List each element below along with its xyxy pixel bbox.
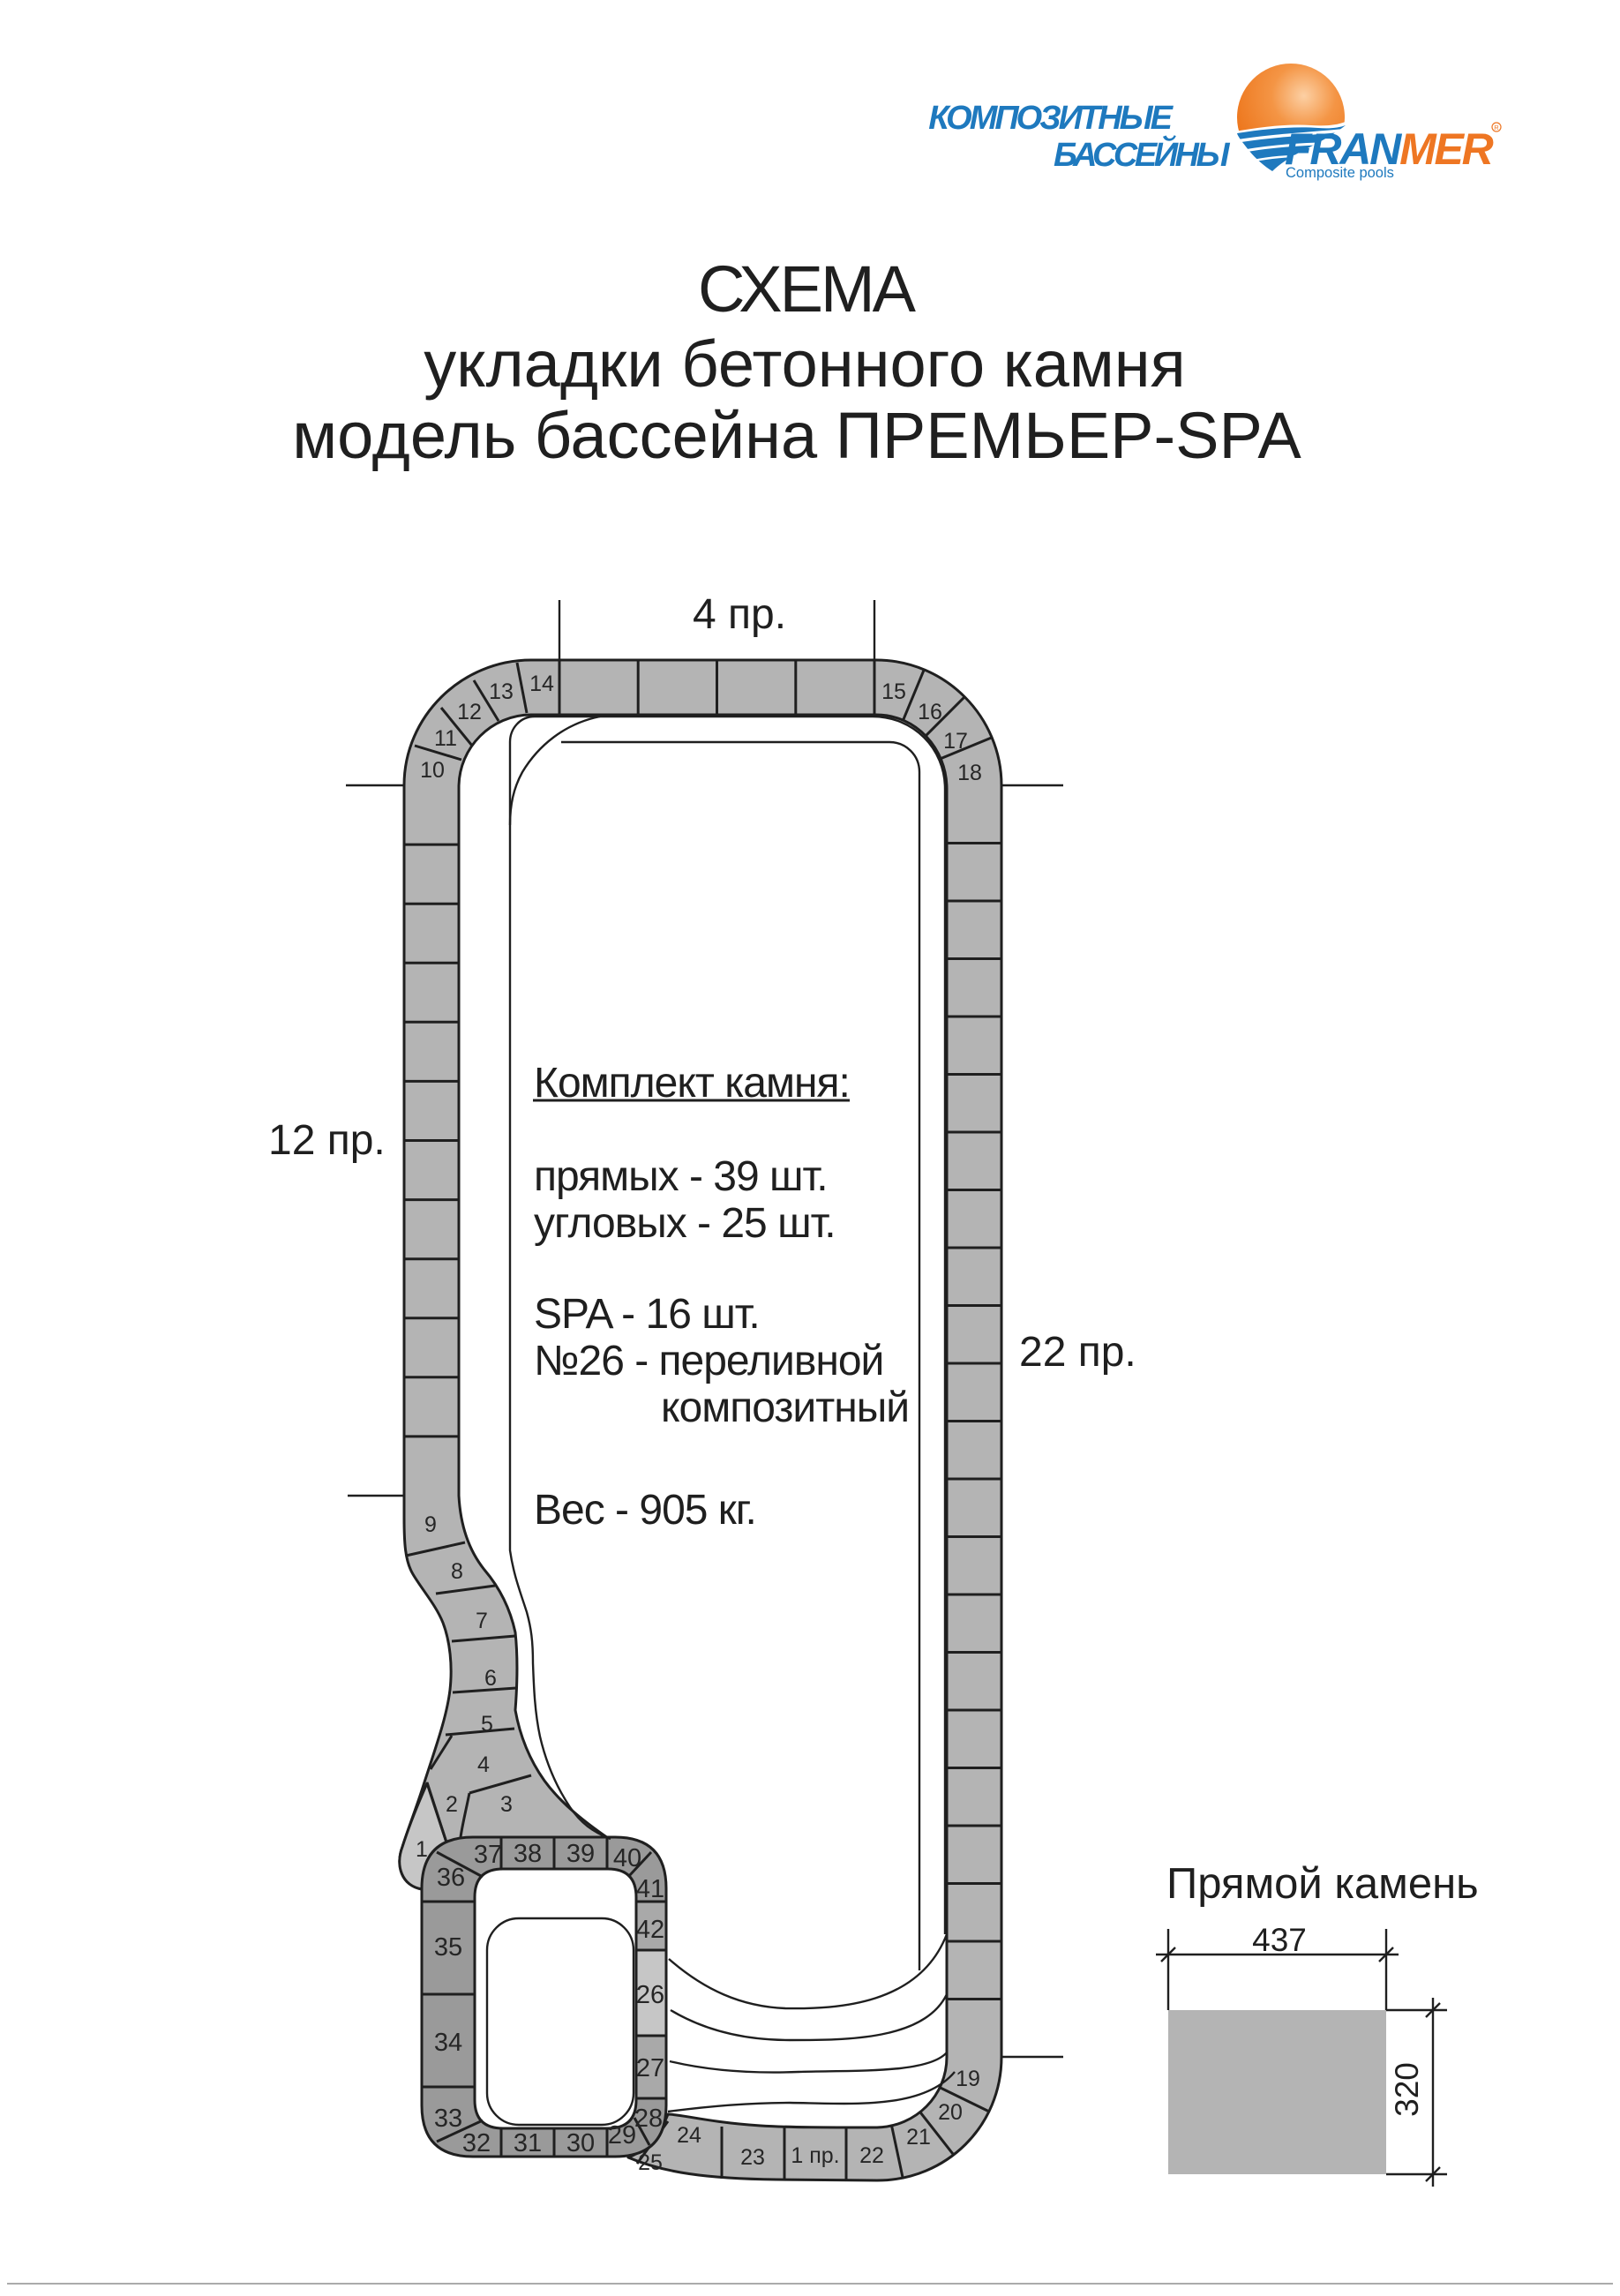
svg-text:R: R (1494, 124, 1499, 131)
svg-text:37: 37 (474, 1841, 502, 1869)
svg-text:16: 16 (918, 700, 942, 724)
svg-text:15: 15 (881, 679, 906, 704)
svg-text:39: 39 (566, 1840, 595, 1868)
svg-text:угловых - 25 шт.: угловых - 25 шт. (534, 1200, 836, 1247)
svg-text:27: 27 (636, 2054, 664, 2082)
svg-text:30: 30 (566, 2129, 595, 2157)
svg-text:4: 4 (477, 1752, 490, 1777)
svg-text:12 пр.: 12 пр. (268, 1117, 386, 1164)
svg-text:14: 14 (529, 672, 554, 696)
svg-text:модель бассейна ПРЕМЬЕР-SPA: модель бассейна ПРЕМЬЕР-SPA (292, 399, 1301, 472)
svg-text:1: 1 (416, 1837, 428, 1862)
svg-text:Composite pools: Composite pools (1286, 165, 1394, 181)
svg-text:СХЕМА: СХЕМА (698, 252, 917, 326)
svg-text:БАССЕЙНЫ: БАССЕЙНЫ (1054, 134, 1231, 174)
svg-text:композитный: композитный (661, 1384, 909, 1431)
svg-text:9: 9 (424, 1512, 437, 1537)
svg-text:36: 36 (437, 1864, 465, 1892)
svg-text:34: 34 (434, 2029, 462, 2057)
svg-text:1 пр.: 1 пр. (791, 2143, 839, 2168)
svg-text:32: 32 (462, 2129, 491, 2157)
svg-text:35: 35 (434, 1933, 462, 1962)
svg-text:23: 23 (740, 2145, 765, 2170)
svg-text:33: 33 (434, 2105, 462, 2133)
svg-text:22: 22 (859, 2143, 884, 2168)
svg-text:укладки бетонного камня: укладки бетонного камня (424, 327, 1185, 401)
svg-text:22 пр.: 22 пр. (1019, 1329, 1136, 1376)
svg-text:25: 25 (638, 2150, 663, 2175)
svg-text:437: 437 (1252, 1922, 1307, 1958)
svg-text:31: 31 (514, 2129, 542, 2157)
svg-text:18: 18 (957, 761, 982, 785)
svg-text:42: 42 (636, 1916, 664, 1944)
svg-text:Вес - 905 кг.: Вес - 905 кг. (534, 1487, 756, 1534)
svg-text:7: 7 (476, 1609, 488, 1633)
svg-text:29: 29 (608, 2121, 636, 2150)
svg-text:12: 12 (457, 700, 482, 724)
svg-text:320: 320 (1389, 2062, 1425, 2117)
svg-text:4 пр.: 4 пр. (693, 591, 786, 638)
svg-text:28: 28 (634, 2105, 663, 2133)
svg-text:5: 5 (481, 1712, 493, 1737)
svg-text:10: 10 (420, 758, 445, 783)
svg-text:прямых - 39 шт.: прямых - 39 шт. (534, 1153, 828, 1200)
svg-text:40: 40 (613, 1844, 641, 1872)
svg-text:КОМПОЗИТНЫЕ: КОМПОЗИТНЫЕ (928, 100, 1174, 137)
svg-text:№26 - переливной: №26 - переливной (534, 1338, 883, 1384)
svg-text:8: 8 (451, 1559, 463, 1584)
svg-text:Прямой камень: Прямой камень (1166, 1860, 1479, 1908)
svg-text:20: 20 (938, 2100, 963, 2125)
svg-text:41: 41 (636, 1875, 664, 1903)
svg-text:21: 21 (906, 2125, 931, 2150)
svg-text:17: 17 (943, 729, 968, 754)
svg-text:11: 11 (434, 726, 457, 751)
svg-text:SPA - 16 шт.: SPA - 16 шт. (534, 1291, 760, 1338)
svg-text:13: 13 (489, 679, 514, 704)
svg-text:24: 24 (677, 2123, 701, 2148)
svg-text:6: 6 (484, 1666, 497, 1691)
svg-text:3: 3 (500, 1792, 513, 1817)
svg-text:19: 19 (956, 2067, 980, 2091)
svg-text:26: 26 (636, 1981, 664, 2009)
svg-text:38: 38 (514, 1840, 542, 1868)
svg-text:2: 2 (446, 1792, 458, 1817)
